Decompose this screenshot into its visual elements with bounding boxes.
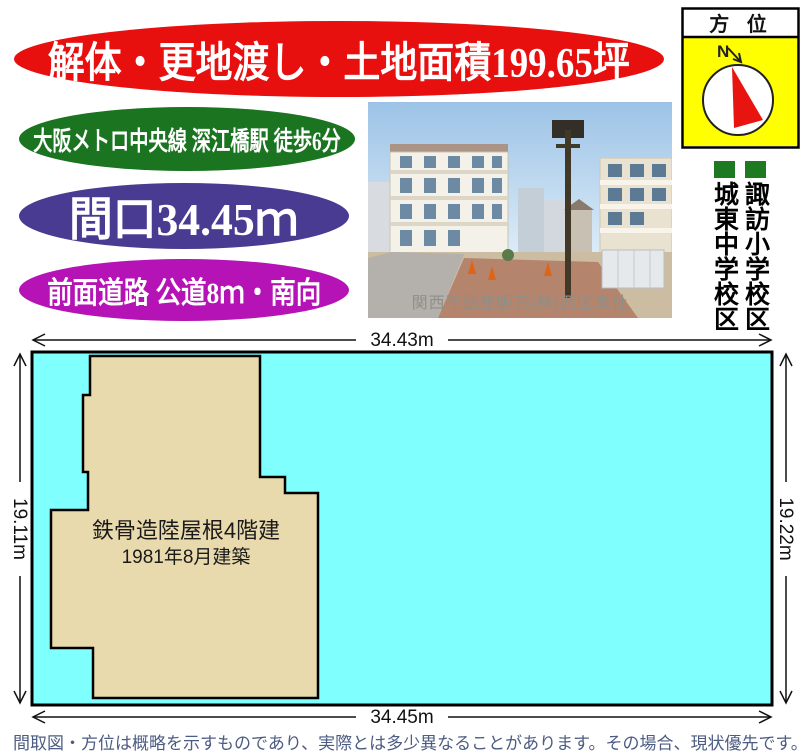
photo-bush	[502, 249, 514, 261]
flyer-page: 解体・更地渡し・土地面積199.65坪 大阪メトロ中央線 深江橋駅 徒歩6分 間…	[0, 0, 804, 753]
photo-caption: 関西不動産販売(株)西区本社	[412, 294, 629, 312]
compass-title: 方 位	[709, 12, 773, 36]
school-district-junior-high: 城東中学校区	[711, 161, 737, 331]
banner-demolition-land-area: 解体・更地渡し・土地面積199.65坪	[14, 21, 664, 97]
photo-mid-building-1	[518, 188, 544, 254]
banner-frontage: 間口34.45ｍ	[19, 183, 349, 249]
banner-station-access-label: 大阪メトロ中央線 深江橋駅 徒歩6分	[33, 121, 341, 158]
compass-illustration: 方 位 N	[681, 7, 800, 149]
photo-white-enclosure	[602, 250, 664, 288]
banner-front-road: 前面道路 公道8ｍ・南向	[19, 259, 349, 321]
banner-front-road-label: 前面道路 公道8ｍ・南向	[47, 268, 321, 312]
photo-mid-building-2	[544, 200, 566, 254]
building-built-date-label: 1981年8月建築	[122, 546, 251, 568]
school-districts: 城東中学校区 諏訪小学校区	[711, 161, 768, 331]
photo-far-building-left	[368, 182, 390, 258]
property-photo-illustration: 関西不動産販売(株)西区本社	[368, 102, 672, 318]
banner-demolition-label: 解体・更地渡し・土地面積199.65坪	[48, 29, 630, 90]
dimension-top-label: 34.43m	[370, 330, 433, 351]
compass-north-label: N	[717, 42, 729, 61]
school-district-elementary: 諏訪小学校区	[742, 161, 768, 331]
green-square-icon	[714, 161, 735, 178]
disclaimer-text: 間取図・方位は概略を示すものであり、実際とは多少異なることがあります。その場合、…	[13, 729, 803, 753]
property-photo: 関西不動産販売(株)西区本社	[368, 102, 672, 318]
school-district-junior-high-label: 城東中学校区	[712, 181, 737, 331]
dimension-bottom-label: 34.45m	[370, 707, 433, 728]
banner-station-access: 大阪メトロ中央線 深江橋駅 徒歩6分	[19, 107, 355, 171]
compass-box: 方 位 N	[681, 7, 800, 149]
building-structure-label: 鉄骨造陸屋根4階建	[92, 518, 280, 543]
banner-frontage-label: 間口34.45ｍ	[69, 183, 298, 249]
green-square-icon	[745, 161, 766, 178]
school-district-elementary-label: 諏訪小学校区	[743, 181, 768, 331]
dimension-left-label: 19.11m	[9, 498, 30, 560]
dimension-right-label: 19.22m	[775, 497, 796, 560]
land-plot-diagram: 鉄骨造陸屋根4階建 1981年8月建築 34.43m 34.45m 19.11m…	[0, 330, 804, 753]
photo-utility-pole	[565, 130, 571, 298]
